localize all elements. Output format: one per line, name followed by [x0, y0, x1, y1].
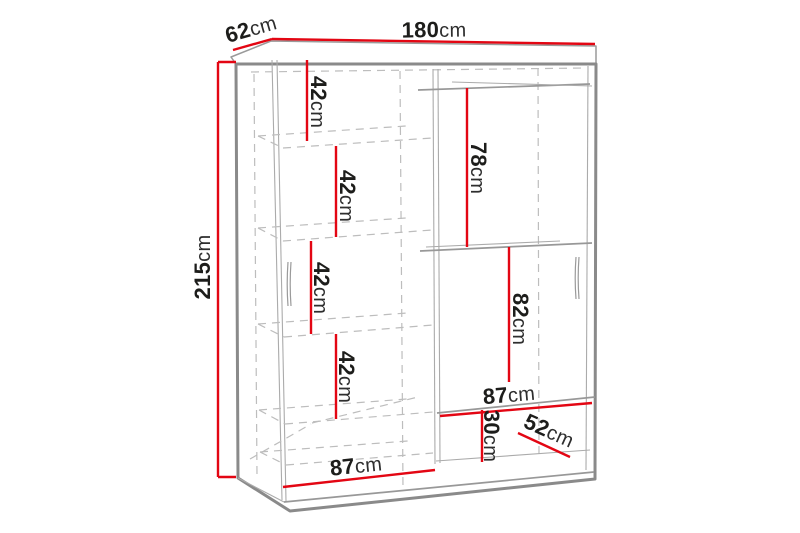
wardrobe-dimension-diagram: 180cm 62cm 215cm 42cm 42cm 42cm 42cm 78c… [0, 0, 800, 533]
dim-unit: cm [479, 435, 501, 462]
dim-label-right-87: 87cm [482, 382, 536, 408]
dim-number: 82 [508, 293, 533, 318]
dim-number: 42 [309, 262, 334, 287]
dim-number: 215 [190, 262, 215, 300]
dim-label-hanging-78: 78cm [467, 142, 489, 194]
dim-number: 42 [306, 76, 331, 101]
wardrobe-line-drawing [0, 0, 800, 533]
dim-unit: cm [306, 101, 328, 128]
dim-number: 78 [466, 142, 491, 167]
dim-number: 42 [334, 351, 359, 376]
dim-unit: cm [466, 167, 488, 194]
cabinet-top-face [231, 41, 596, 64]
dim-number: 30 [479, 410, 504, 435]
dim-label-shelf-gap-1: 42cm [307, 76, 329, 128]
dim-label-bottom-30: 30cm [480, 410, 502, 462]
dim-number: 87 [482, 382, 509, 409]
dim-label-width-180: 180cm [401, 18, 466, 41]
dim-label-shelf-gap-4: 42cm [335, 351, 357, 403]
dim-unit: cm [507, 383, 536, 407]
dim-label-left-87: 87cm [329, 452, 383, 479]
dim-unit: cm [335, 195, 357, 222]
dim-unit: cm [439, 19, 467, 41]
dim-unit: cm [354, 453, 383, 478]
dim-label-right-82: 82cm [509, 293, 531, 345]
dim-unit: cm [334, 376, 356, 403]
dim-number: 87 [329, 453, 357, 480]
dim-unit: cm [508, 318, 530, 345]
dim-unit: cm [193, 235, 215, 262]
dim-number: 180 [401, 17, 439, 43]
dim-label-shelf-gap-3: 42cm [310, 262, 332, 314]
dim-number: 42 [335, 170, 360, 195]
dim-label-shelf-gap-2: 42cm [336, 170, 358, 222]
dim-label-height-215: 215cm [192, 235, 214, 300]
dim-unit: cm [309, 287, 331, 314]
dim-line-height-215 [218, 62, 236, 477]
